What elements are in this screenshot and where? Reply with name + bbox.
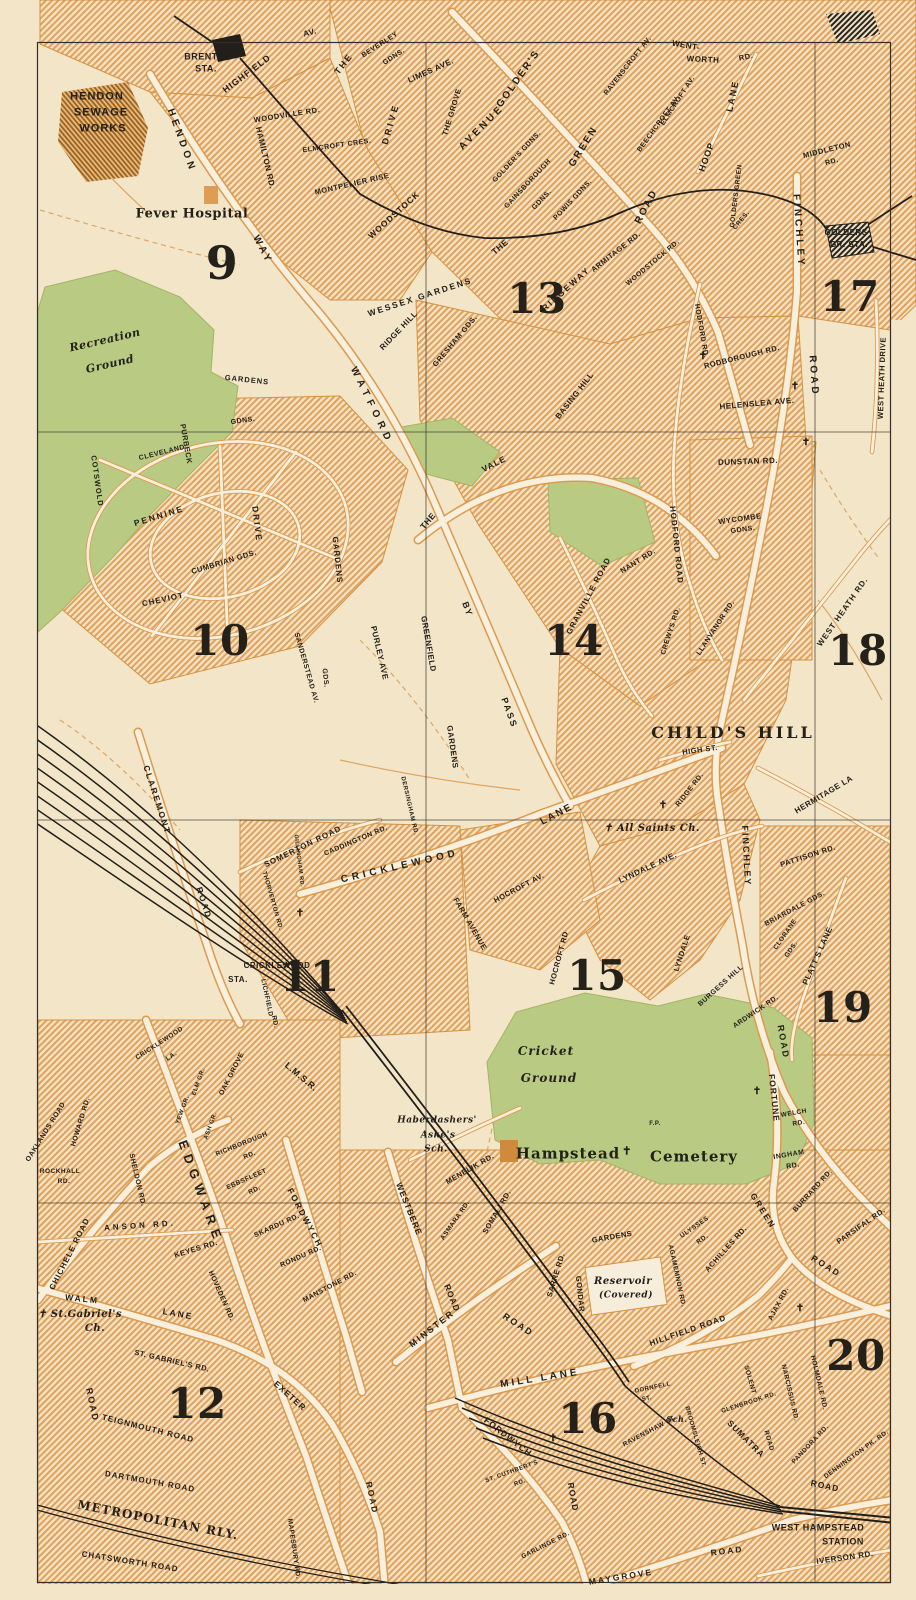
golders-green-station-marker xyxy=(826,222,874,258)
map-canvas: HENDONSEWAGEWORKSBRENTSTA.HIGHFIELDAV.TH… xyxy=(0,0,916,1600)
map-artwork xyxy=(0,0,916,1600)
fever-hospital-building xyxy=(204,186,218,204)
cemetery-cricket-ground-area xyxy=(487,993,814,1184)
reservoir-block xyxy=(585,1257,667,1315)
school-building xyxy=(500,1140,518,1162)
